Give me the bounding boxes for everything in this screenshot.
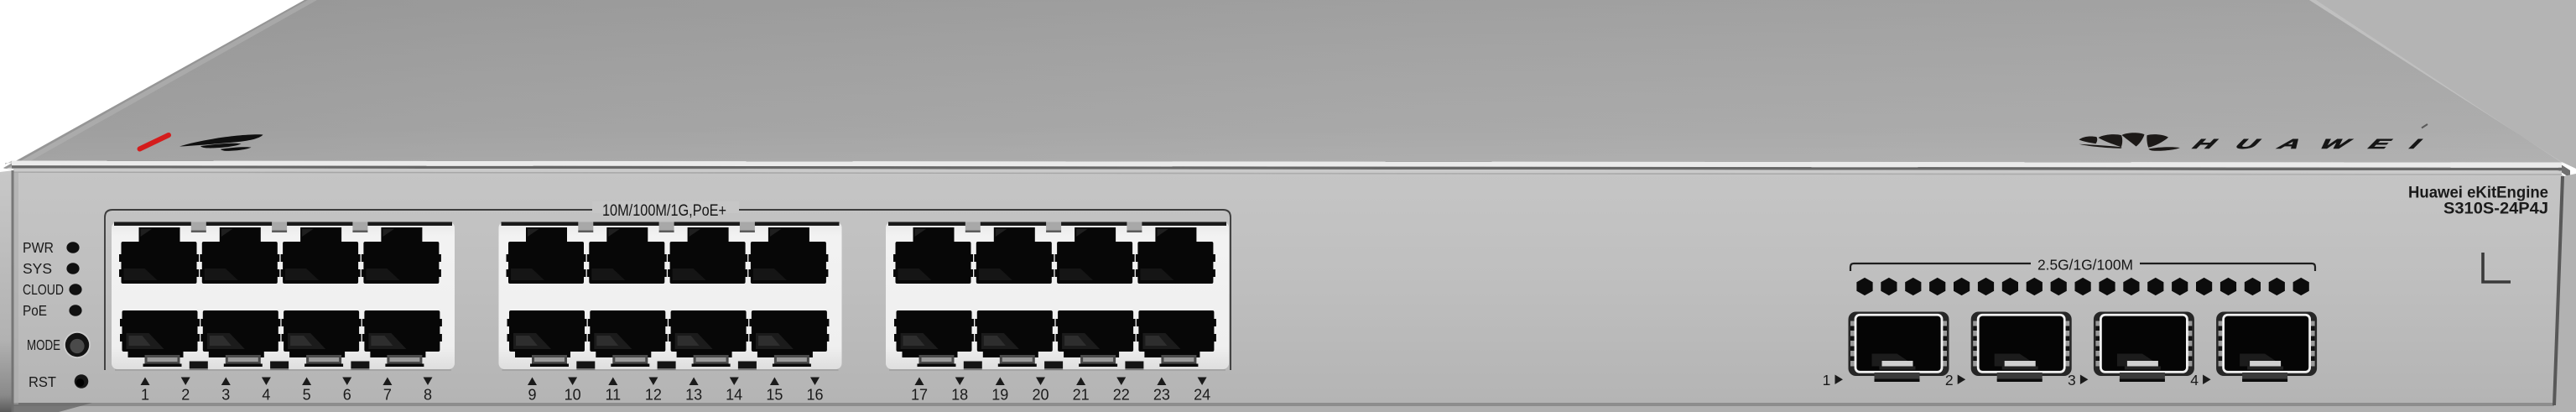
svg-text:10: 10 <box>565 387 581 404</box>
svg-text:5: 5 <box>303 387 311 404</box>
svg-text:11: 11 <box>605 387 621 404</box>
svg-text:6: 6 <box>343 387 351 404</box>
svg-text:2: 2 <box>1945 372 1954 389</box>
svg-text:HUAWEI: HUAWEI <box>2187 137 2449 152</box>
svg-text:10M/100M/1G,PoE+: 10M/100M/1G,PoE+ <box>602 201 726 220</box>
svg-text:RST: RST <box>29 373 56 390</box>
svg-text:2: 2 <box>181 387 190 404</box>
svg-text:1: 1 <box>1823 372 1831 389</box>
svg-text:17: 17 <box>911 387 928 404</box>
svg-text:23: 23 <box>1153 387 1170 404</box>
svg-text:24: 24 <box>1194 387 1210 404</box>
svg-text:4: 4 <box>2190 372 2199 389</box>
svg-text:16: 16 <box>806 387 823 404</box>
svg-text:CLOUD: CLOUD <box>23 281 64 298</box>
svg-text:Huawei eKitEngine: Huawei eKitEngine <box>2408 185 2548 202</box>
svg-text:12: 12 <box>645 387 662 404</box>
svg-text:MODE: MODE <box>27 336 60 353</box>
svg-text:22: 22 <box>1113 387 1130 404</box>
svg-text:13: 13 <box>685 387 702 404</box>
svg-text:3: 3 <box>221 387 230 404</box>
svg-text:18: 18 <box>951 387 968 404</box>
svg-text:14: 14 <box>726 387 742 404</box>
svg-text:19: 19 <box>991 387 1008 404</box>
svg-text:7: 7 <box>383 387 392 404</box>
svg-text:21: 21 <box>1073 387 1090 404</box>
svg-text:3: 3 <box>2068 372 2076 389</box>
svg-text:20: 20 <box>1032 387 1049 404</box>
svg-text:15: 15 <box>766 387 783 404</box>
svg-text:2.5G/1G/100M: 2.5G/1G/100M <box>2037 257 2133 274</box>
svg-text:4: 4 <box>262 387 270 404</box>
svg-text:S310S-24P4J: S310S-24P4J <box>2443 201 2548 218</box>
svg-text:SYS: SYS <box>23 260 52 277</box>
svg-text:PWR: PWR <box>23 239 54 256</box>
svg-text:1: 1 <box>141 387 149 404</box>
svg-text:PoE: PoE <box>23 302 47 319</box>
svg-text:8: 8 <box>424 387 432 404</box>
svg-text:9: 9 <box>528 387 536 404</box>
